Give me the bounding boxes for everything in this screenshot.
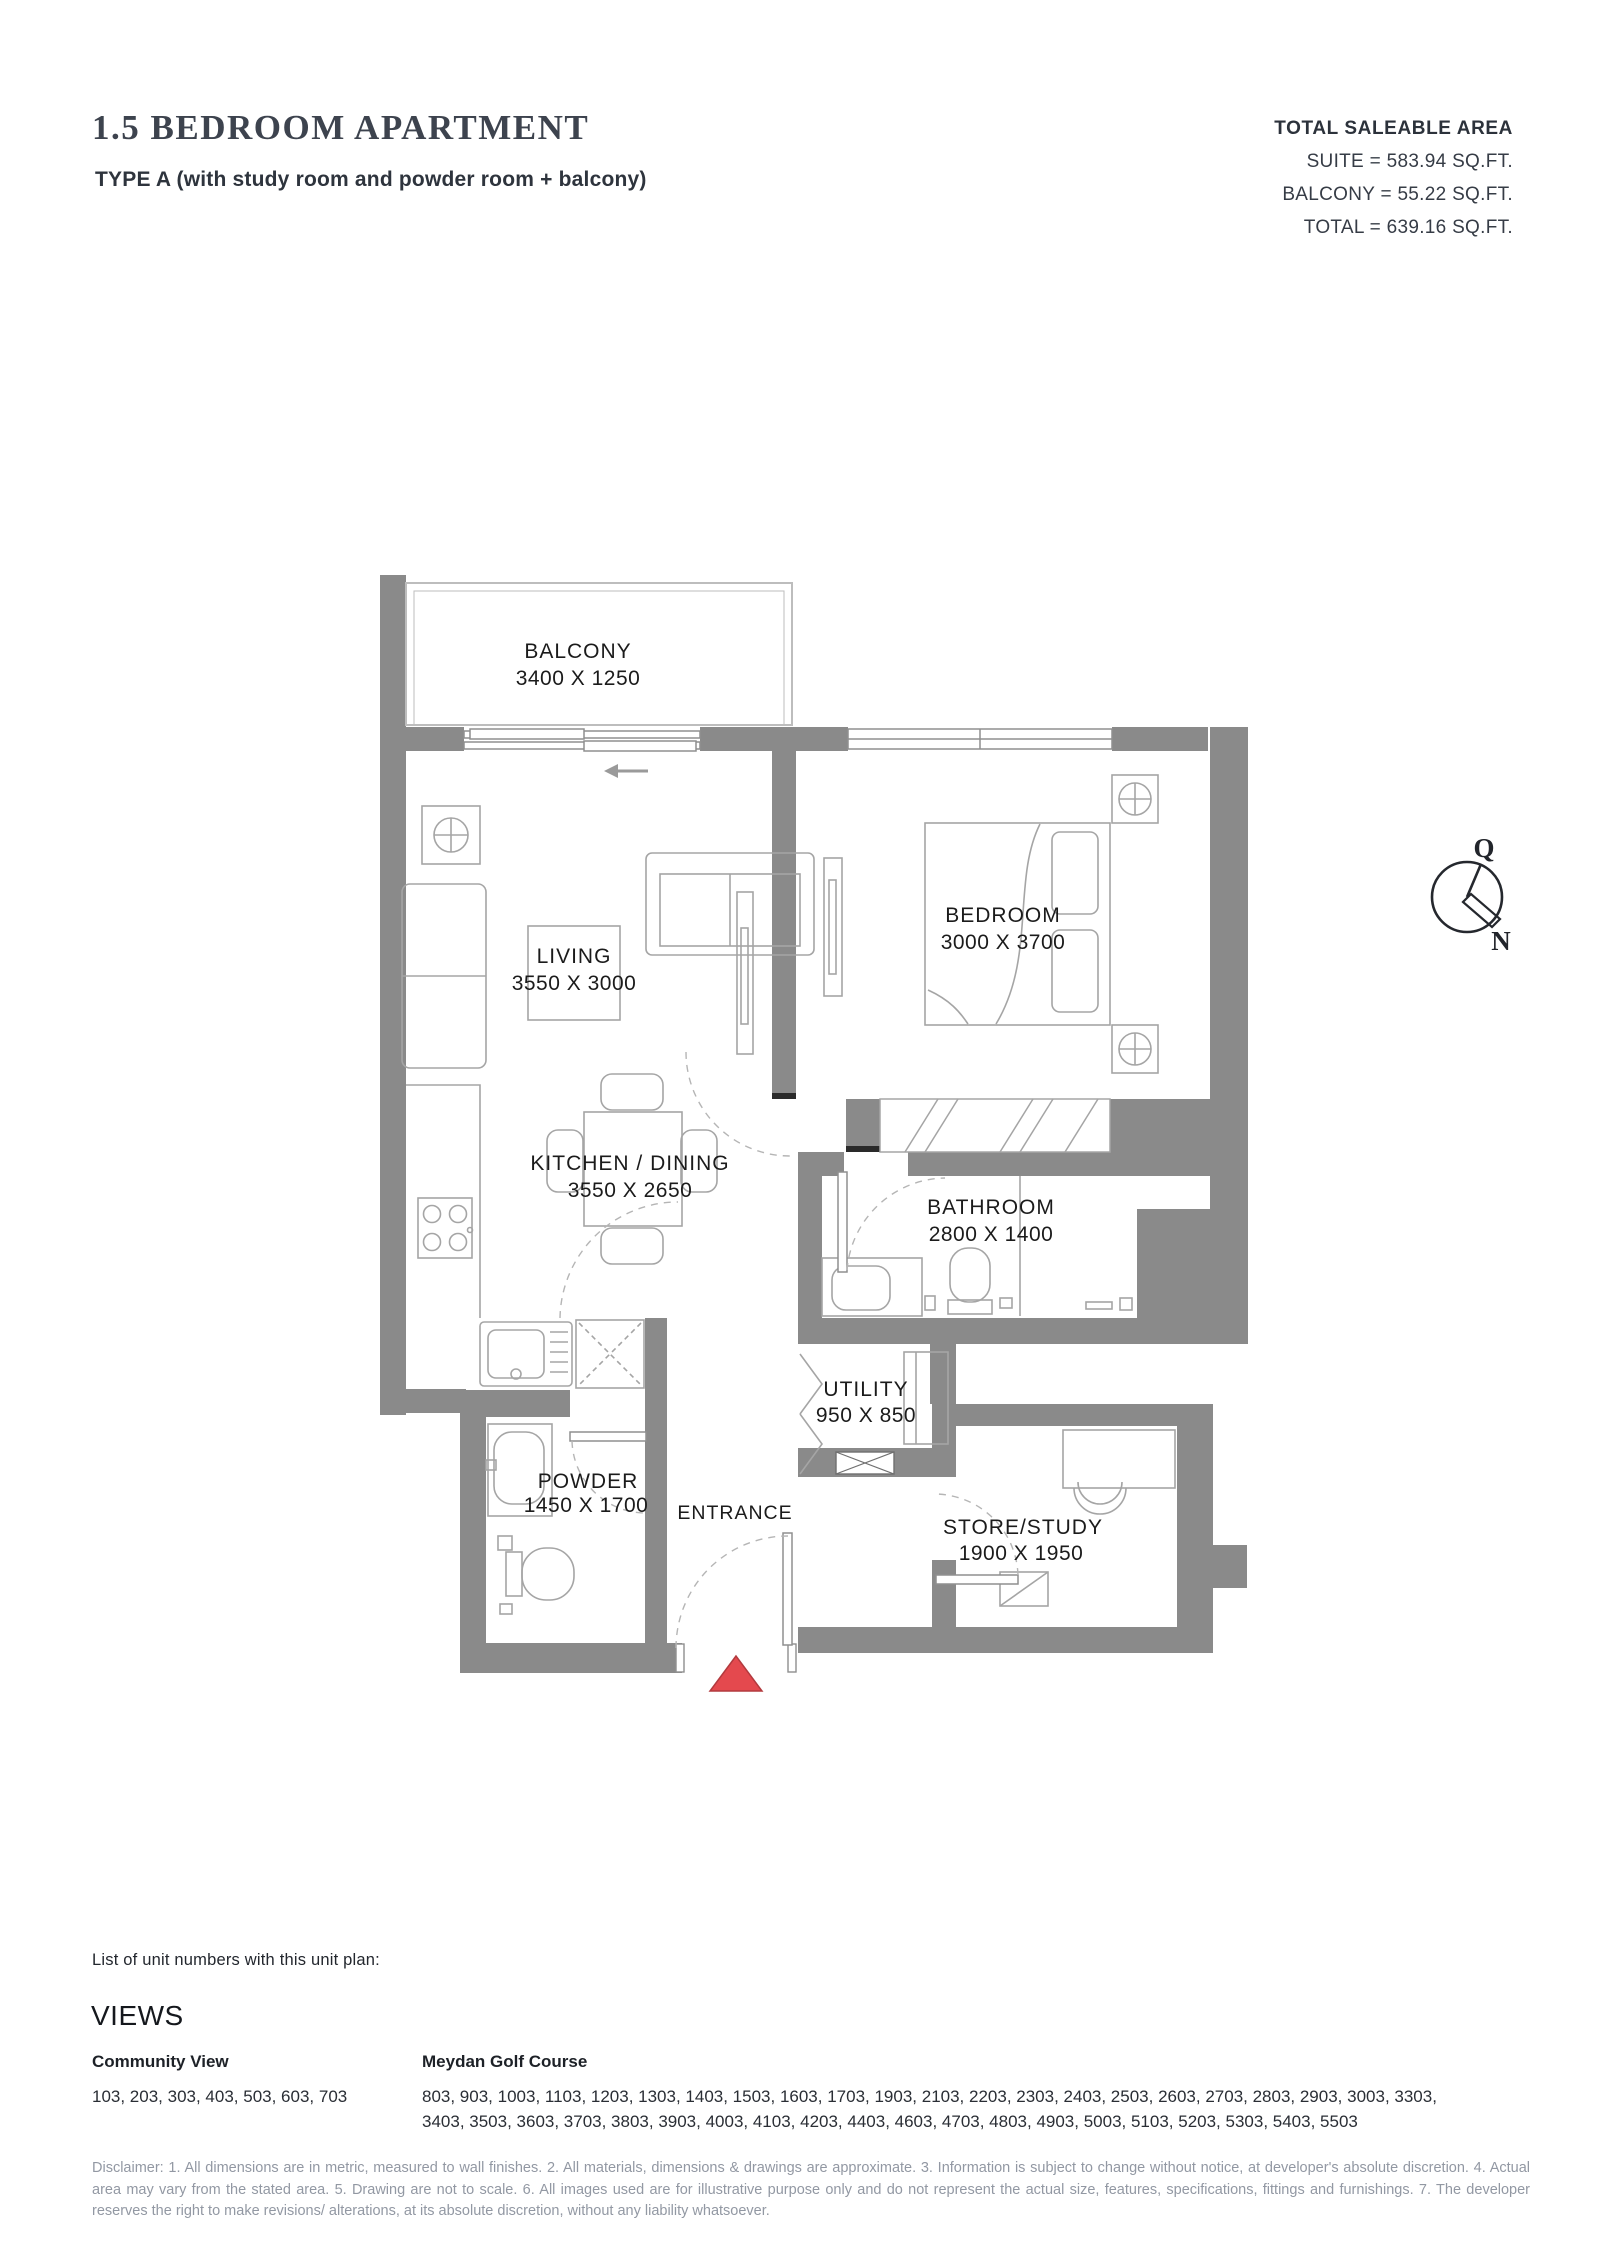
room-dims-bedroom: 3000 X 3700 [941, 931, 1066, 954]
views-heading: VIEWS [91, 2000, 184, 2032]
views-column-community: Community View 103, 203, 303, 403, 503, … [92, 2052, 392, 2109]
bedroom-window [848, 729, 1112, 749]
room-dims-balcony: 3400 X 1250 [516, 667, 641, 690]
room-label-kitchen: KITCHEN / DINING [530, 1152, 729, 1175]
compass-icon: Q N [1432, 833, 1511, 956]
community-view-title: Community View [92, 2052, 392, 2072]
room-dims-kitchen: 3550 X 2650 [568, 1179, 693, 1202]
room-dims-bathroom: 2800 X 1400 [929, 1223, 1054, 1246]
room-label-powder: POWDER [538, 1470, 639, 1493]
bathroom-door [838, 1172, 945, 1272]
room-label-bathroom: BATHROOM [927, 1196, 1055, 1219]
room-label-utility: UTILITY [823, 1378, 908, 1401]
entrance-label: ENTRANCE [677, 1502, 792, 1524]
room-label-balcony: BALCONY [524, 640, 631, 663]
laundry-box [836, 1452, 894, 1474]
golf-course-units-line1: 803, 903, 1003, 1103, 1203, 1303, 1403, … [422, 2084, 1530, 2109]
entrance-marker-icon [710, 1656, 762, 1691]
powder-fixtures [486, 1424, 574, 1614]
slide-arrow-icon [604, 764, 648, 778]
community-view-units: 103, 203, 303, 403, 503, 603, 703 [92, 2084, 392, 2109]
golf-course-title: Meydan Golf Course [422, 2052, 1530, 2072]
room-dims-store: 1900 X 1950 [959, 1542, 1084, 1565]
disclaimer-text: Disclaimer: 1. All dimensions are in met… [92, 2158, 1530, 2223]
balcony-sliding-door [464, 729, 700, 751]
kitchen-fixtures [406, 1085, 644, 1388]
room-label-bedroom: BEDROOM [945, 904, 1061, 927]
golf-course-units-line2: 3403, 3503, 3603, 3703, 3803, 3903, 4003… [422, 2109, 1530, 2134]
room-dims-powder: 1450 X 1700 [524, 1494, 649, 1517]
wardrobe [880, 1099, 1110, 1152]
entrance-door [676, 1533, 796, 1672]
room-dims-living: 3550 X 3000 [512, 972, 637, 995]
living-furniture [402, 806, 814, 1068]
room-dims-utility: 950 X 850 [816, 1404, 916, 1427]
compass-qibla-label: Q [1473, 833, 1494, 863]
floor-plan: BALCONY 3400 X 1250 LIVING 3550 X 3000 B… [0, 0, 1600, 2263]
room-label-store: STORE/STUDY [943, 1516, 1103, 1539]
room-label-living: LIVING [537, 945, 612, 968]
unit-list-intro: List of unit numbers with this unit plan… [92, 1951, 380, 1970]
views-column-golf: Meydan Golf Course 803, 903, 1003, 1103,… [422, 2052, 1530, 2134]
compass-north-label: N [1491, 926, 1511, 956]
